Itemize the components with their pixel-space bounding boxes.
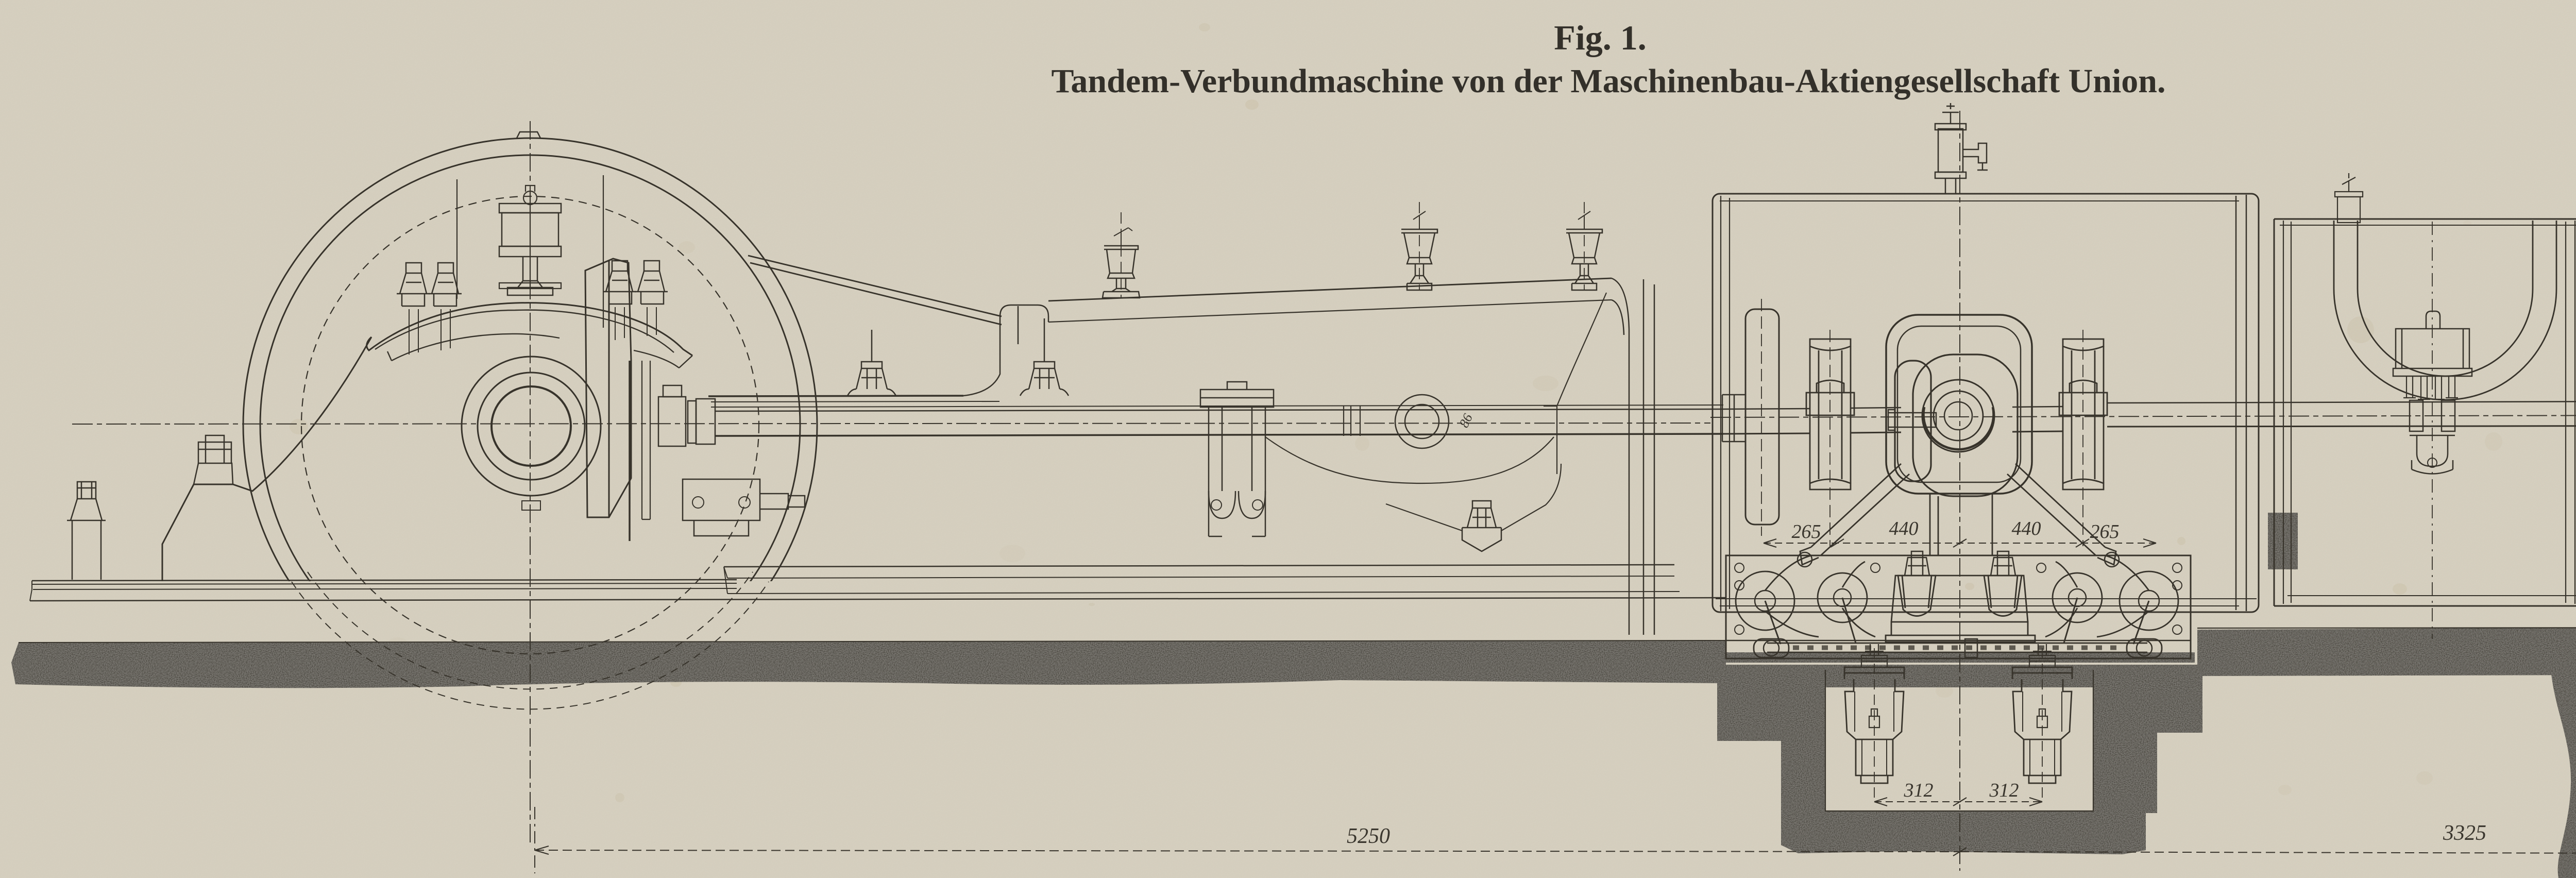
svg-text:Tandem-Verbundmaschine von der: Tandem-Verbundmaschine von der Maschinen… [1051,62,2165,100]
svg-text:3325: 3325 [2443,821,2486,845]
svg-text:312: 312 [1904,780,1934,801]
svg-text:440: 440 [2012,518,2041,539]
svg-text:265: 265 [1792,521,1821,543]
svg-text:Fig. 1.: Fig. 1. [1554,18,1646,57]
svg-text:265: 265 [2090,521,2120,543]
svg-text:312: 312 [1989,780,2019,801]
svg-text:5250: 5250 [1347,824,1390,848]
svg-text:440: 440 [1889,518,1919,539]
